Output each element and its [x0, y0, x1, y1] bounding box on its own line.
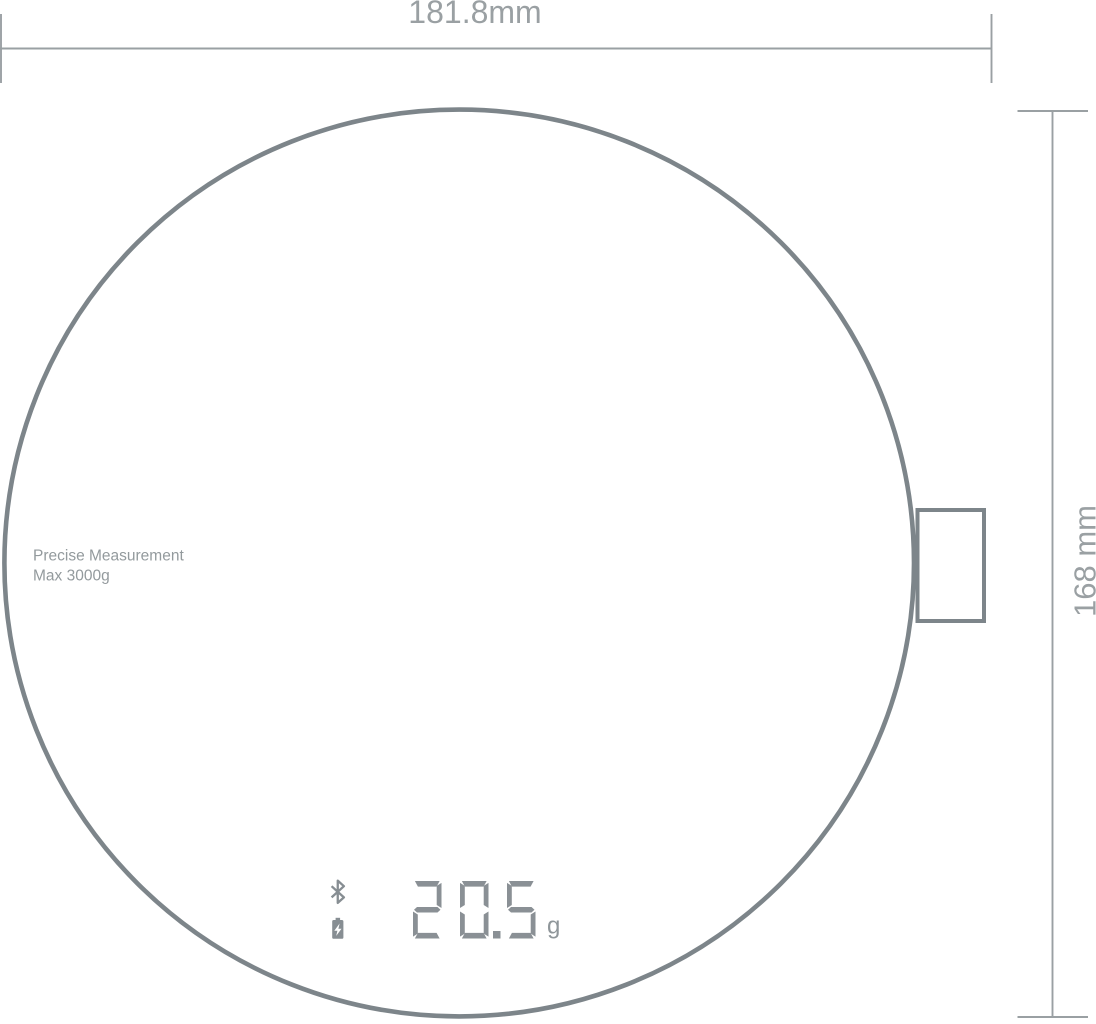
svg-text:g: g	[547, 913, 560, 940]
svg-text:Max 3000g: Max 3000g	[33, 568, 110, 585]
svg-text:168 mm: 168 mm	[1068, 505, 1096, 617]
svg-text:181.8mm: 181.8mm	[408, 0, 541, 30]
svg-text:Precise Measurement: Precise Measurement	[33, 547, 184, 564]
